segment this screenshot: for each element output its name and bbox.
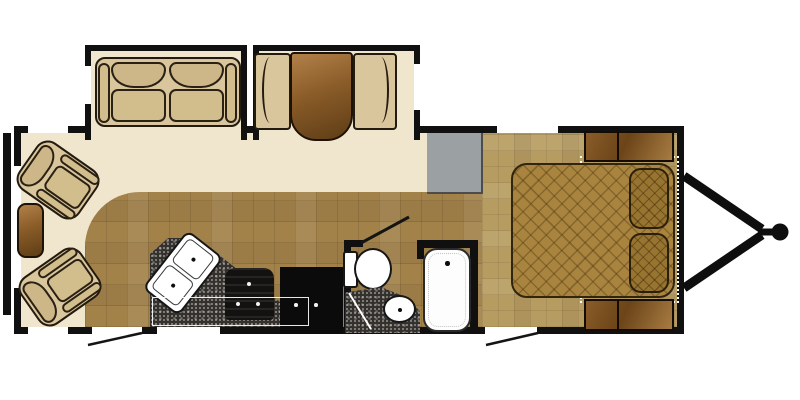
toilet-bowl bbox=[354, 248, 392, 290]
entry-door-opening-main bbox=[92, 327, 142, 334]
tub-drain bbox=[445, 261, 450, 266]
nightstand-bottom bbox=[584, 299, 674, 331]
sofa-back-cushion bbox=[111, 62, 166, 88]
fridge-handle bbox=[314, 303, 318, 307]
dinette-table bbox=[290, 52, 353, 141]
sofa-back-cushion bbox=[169, 62, 224, 88]
sofa-seat-cushion bbox=[169, 89, 224, 122]
nightstand-top bbox=[584, 131, 674, 162]
bathroom-wall-right bbox=[470, 240, 478, 333]
sink-drain bbox=[170, 283, 176, 289]
sink-drain bbox=[191, 257, 197, 263]
dinette-bench-right bbox=[353, 53, 397, 130]
window-bottom-living bbox=[157, 327, 220, 334]
bathroom-wall-stub bbox=[344, 240, 363, 247]
hitch-a-frame bbox=[684, 176, 789, 288]
window-bottom-left bbox=[28, 327, 68, 334]
floorplan-canvas: Travel trailer floor plan bbox=[0, 0, 800, 400]
tub-wall-top bbox=[417, 240, 478, 248]
vanity-sink bbox=[383, 295, 416, 323]
cabinet-divider bbox=[617, 133, 619, 160]
dinette-bench-left bbox=[254, 53, 291, 130]
pillow-top bbox=[629, 168, 669, 229]
counter-edge-outline bbox=[152, 297, 309, 326]
cabinet-divider bbox=[617, 301, 619, 329]
sofa bbox=[95, 57, 241, 127]
sofa-seat-cushion bbox=[111, 89, 166, 122]
hitch-ball bbox=[772, 224, 789, 241]
pillow-bottom bbox=[629, 233, 669, 293]
bench-back-curve bbox=[262, 57, 278, 123]
window-top-left bbox=[28, 126, 68, 133]
door-swing-bedroom bbox=[486, 333, 538, 345]
sink-drain bbox=[398, 308, 402, 312]
shower-tub bbox=[423, 248, 471, 332]
window-sofa-slide bbox=[85, 66, 91, 104]
entry-door-opening-bedroom bbox=[485, 327, 537, 334]
sofa-armrest bbox=[98, 63, 110, 123]
end-table bbox=[17, 203, 44, 258]
bench-back-curve bbox=[373, 57, 389, 123]
door-swing-main bbox=[88, 333, 142, 345]
rear-bumper bbox=[3, 133, 11, 315]
window-bedroom-top bbox=[497, 126, 558, 133]
wardrobe-cabinet bbox=[427, 133, 483, 194]
window-dinette-slide bbox=[414, 64, 420, 110]
sofa-armrest bbox=[225, 63, 237, 123]
burner-knob bbox=[247, 282, 251, 286]
